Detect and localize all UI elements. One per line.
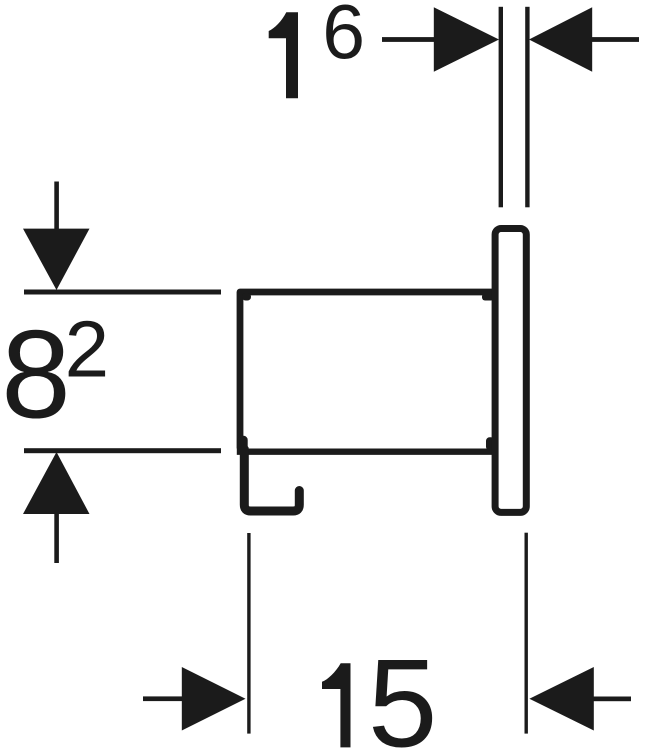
svg-text:5: 5: [368, 635, 438, 750]
svg-text:8: 8: [1, 306, 71, 445]
svg-text:6: 6: [322, 0, 365, 76]
svg-text:2: 2: [65, 304, 110, 393]
